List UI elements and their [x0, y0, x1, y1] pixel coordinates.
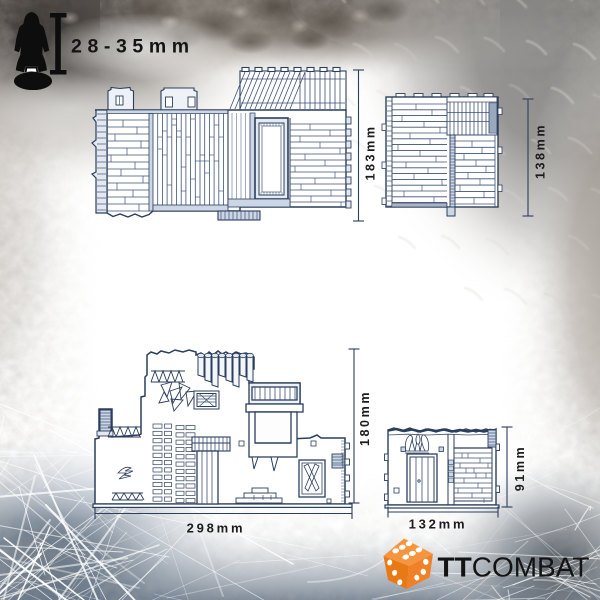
svg-text:28-35mm: 28-35mm — [71, 36, 195, 58]
svg-text:183mm: 183mm — [364, 124, 378, 180]
svg-text:91mm: 91mm — [513, 445, 527, 492]
svg-text:138mm: 138mm — [534, 123, 548, 179]
svg-text:298mm: 298mm — [187, 521, 246, 536]
svg-text:132mm: 132mm — [409, 517, 468, 532]
svg-text:180mm: 180mm — [358, 390, 372, 446]
svg-text:TTCOMBAT: TTCOMBAT — [438, 552, 590, 583]
